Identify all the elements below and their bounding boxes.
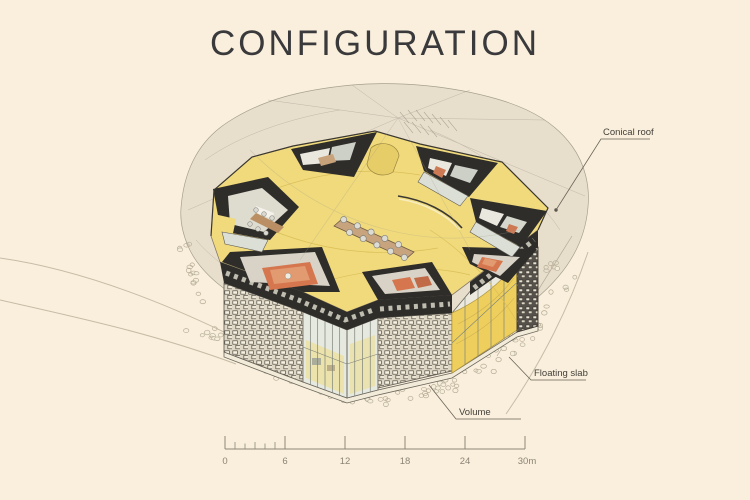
stipple	[215, 337, 220, 341]
scale-label-6: 6	[282, 456, 287, 467]
chair	[360, 236, 366, 242]
stipple	[563, 285, 568, 289]
stipple	[408, 396, 413, 400]
stipple	[520, 343, 525, 347]
stipple	[368, 399, 373, 403]
stipple	[446, 386, 451, 390]
chair	[354, 223, 360, 229]
stipple	[481, 364, 487, 368]
stipple	[421, 387, 426, 390]
stipple	[436, 386, 441, 390]
stipple	[544, 305, 549, 308]
label-floating-slab: Floating slab	[534, 368, 588, 379]
stipple	[440, 390, 445, 394]
scale-label-0: 0	[222, 456, 227, 467]
label-volume: Volume	[459, 407, 491, 418]
stipple	[549, 290, 553, 295]
configuration-diagram: CONFIGURATION	[0, 0, 750, 500]
chair	[401, 254, 407, 260]
stipple	[184, 329, 189, 333]
stipple	[419, 394, 424, 398]
stipple	[204, 330, 210, 335]
chair	[341, 217, 347, 223]
stipple	[491, 369, 496, 373]
stipple	[396, 391, 400, 395]
stipple	[453, 388, 458, 392]
stipple	[510, 351, 515, 356]
scale-major-ticks	[225, 436, 525, 449]
stipple	[441, 383, 446, 387]
axonometric-illustration: Conical roof Floating slab Volume	[0, 0, 750, 500]
stipple	[542, 311, 548, 316]
stipple	[476, 369, 482, 373]
scale-label-12: 12	[340, 456, 351, 467]
stipple	[177, 248, 182, 252]
stipple	[218, 333, 223, 337]
annotation-floating-slab: Floating slab	[509, 357, 588, 380]
stipple	[200, 334, 204, 337]
interior-furniture-sil	[312, 358, 321, 365]
scale-minor-ticks	[235, 442, 275, 449]
chair	[346, 229, 352, 235]
stipple	[531, 337, 535, 341]
scale-label-24: 24	[460, 456, 471, 467]
chair	[395, 242, 401, 248]
stipple	[520, 338, 525, 342]
stipple	[194, 272, 199, 275]
scale-label-18: 18	[400, 456, 411, 467]
stipple	[200, 300, 206, 304]
stipple	[378, 398, 383, 402]
stipple	[452, 378, 457, 382]
scale-bar: 0 6 12 18 24 30m	[222, 436, 536, 467]
chair	[382, 235, 388, 241]
stipple	[383, 402, 388, 407]
stipple	[573, 275, 577, 279]
stipple	[196, 292, 201, 295]
scale-labels: 0 6 12 18 24 30m	[222, 456, 536, 467]
chair	[388, 248, 394, 254]
interior-furniture-sil	[327, 365, 335, 371]
chair	[374, 242, 380, 248]
chair	[368, 229, 374, 235]
scale-label-30m: 30m	[518, 456, 537, 467]
stipple	[496, 357, 501, 361]
label-conical-roof: Conical roof	[603, 127, 654, 138]
stipple	[555, 266, 559, 270]
